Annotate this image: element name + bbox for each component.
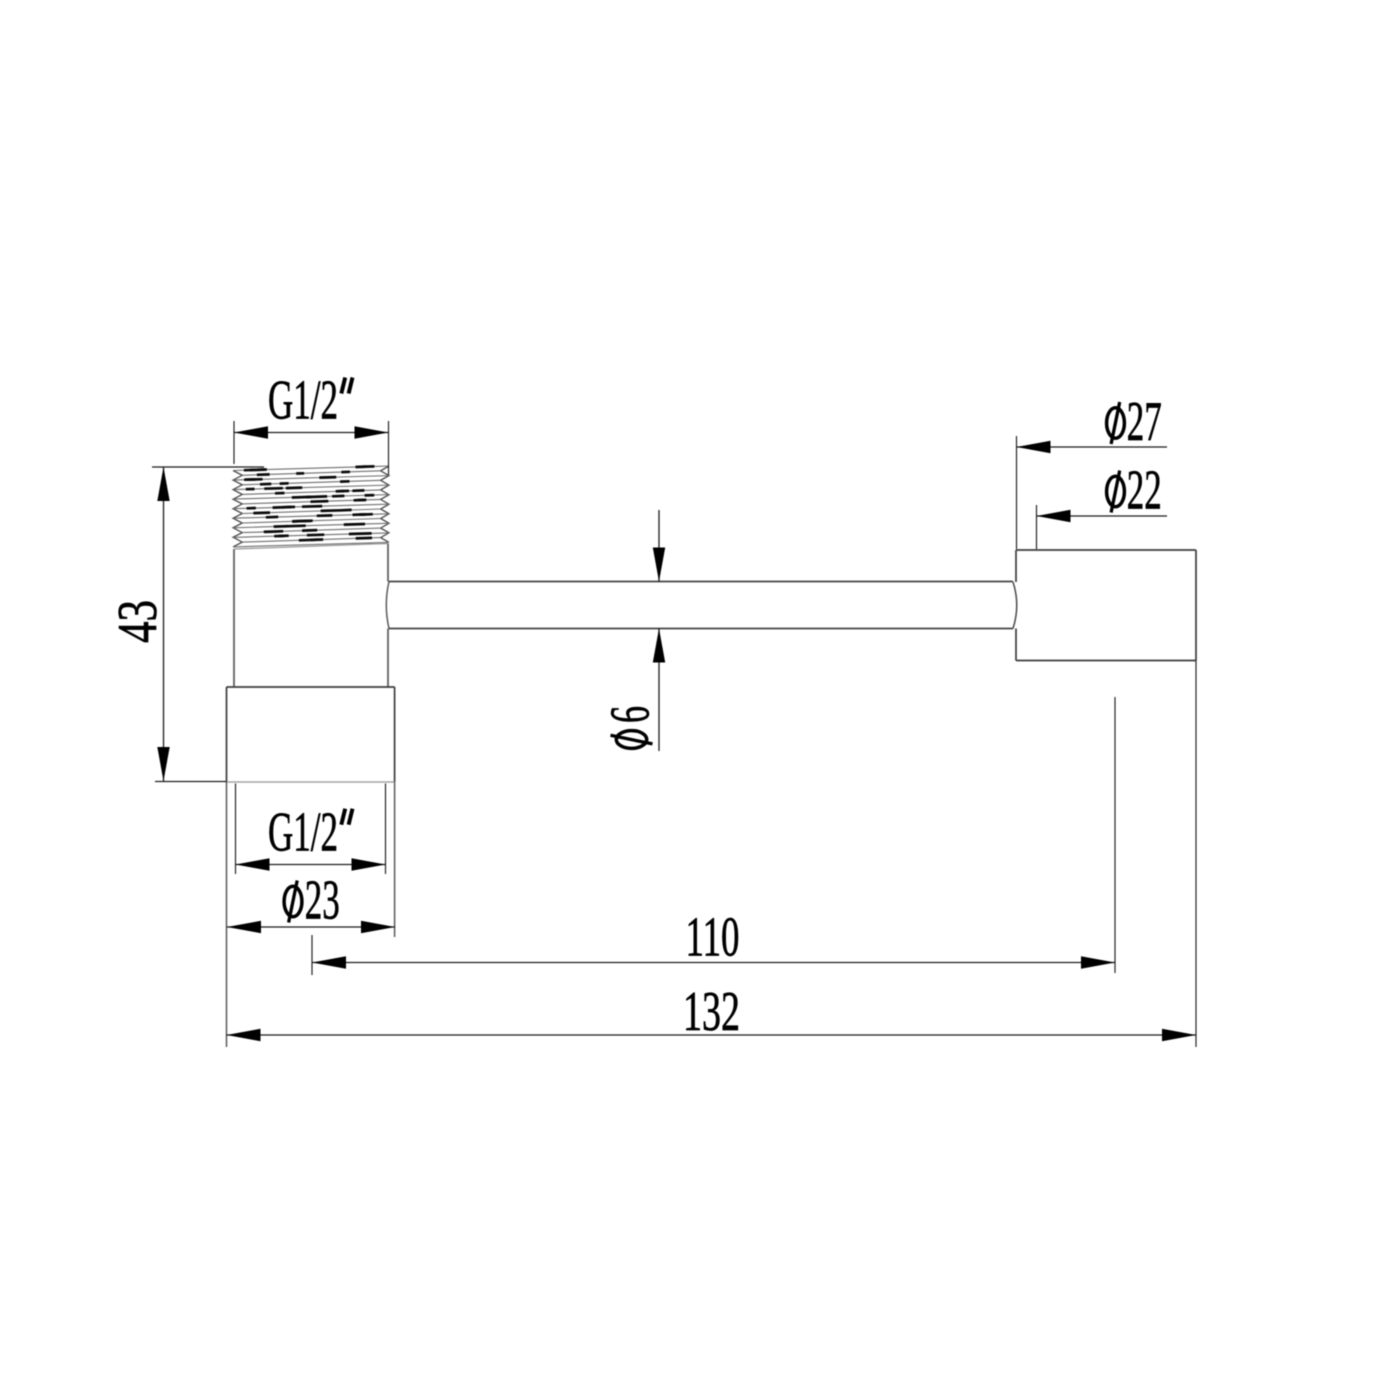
svg-text:27: 27 [1127, 391, 1162, 453]
svg-text:G1/2: G1/2 [268, 802, 338, 864]
svg-text:23: 23 [305, 870, 340, 932]
svg-text:43: 43 [107, 600, 169, 643]
svg-text:G1/2: G1/2 [268, 370, 338, 432]
svg-text:110: 110 [686, 907, 740, 969]
svg-text:132: 132 [683, 981, 740, 1043]
svg-text:22: 22 [1127, 460, 1162, 522]
svg-text:6: 6 [600, 706, 662, 723]
